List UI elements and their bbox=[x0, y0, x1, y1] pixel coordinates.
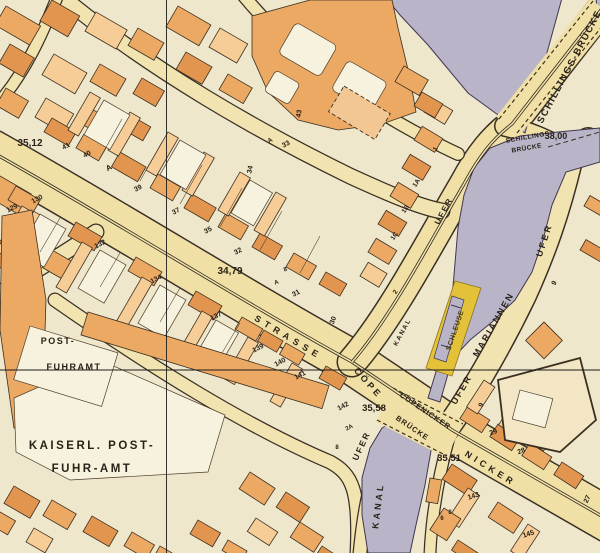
map-label-38-00: 38,00 bbox=[545, 131, 568, 141]
map-label-35-12: 35,12 bbox=[17, 138, 42, 149]
map-label-35-58: 35,58 bbox=[362, 403, 386, 414]
map-label-fuhr-amt: FUHR-AMT bbox=[52, 463, 133, 475]
historical-map-svg: SCHILLINGS-BRÜCKESCHILLINGSBRÜCKE38,00UF… bbox=[0, 0, 600, 553]
map-label-fuhramt: FUHRAMT bbox=[47, 362, 102, 372]
map-label-post-: POST- bbox=[41, 336, 76, 346]
map-label-34-79: 34,79 bbox=[217, 266, 242, 277]
map-label-43: 43 bbox=[295, 109, 303, 118]
map-label-35-51: 35,51 bbox=[437, 453, 461, 464]
map-label-kaiserl-post-: KAISERL. POST- bbox=[29, 440, 155, 452]
map-stage: SCHILLINGS-BRÜCKESCHILLINGSBRÜCKE38,00UF… bbox=[0, 0, 600, 553]
